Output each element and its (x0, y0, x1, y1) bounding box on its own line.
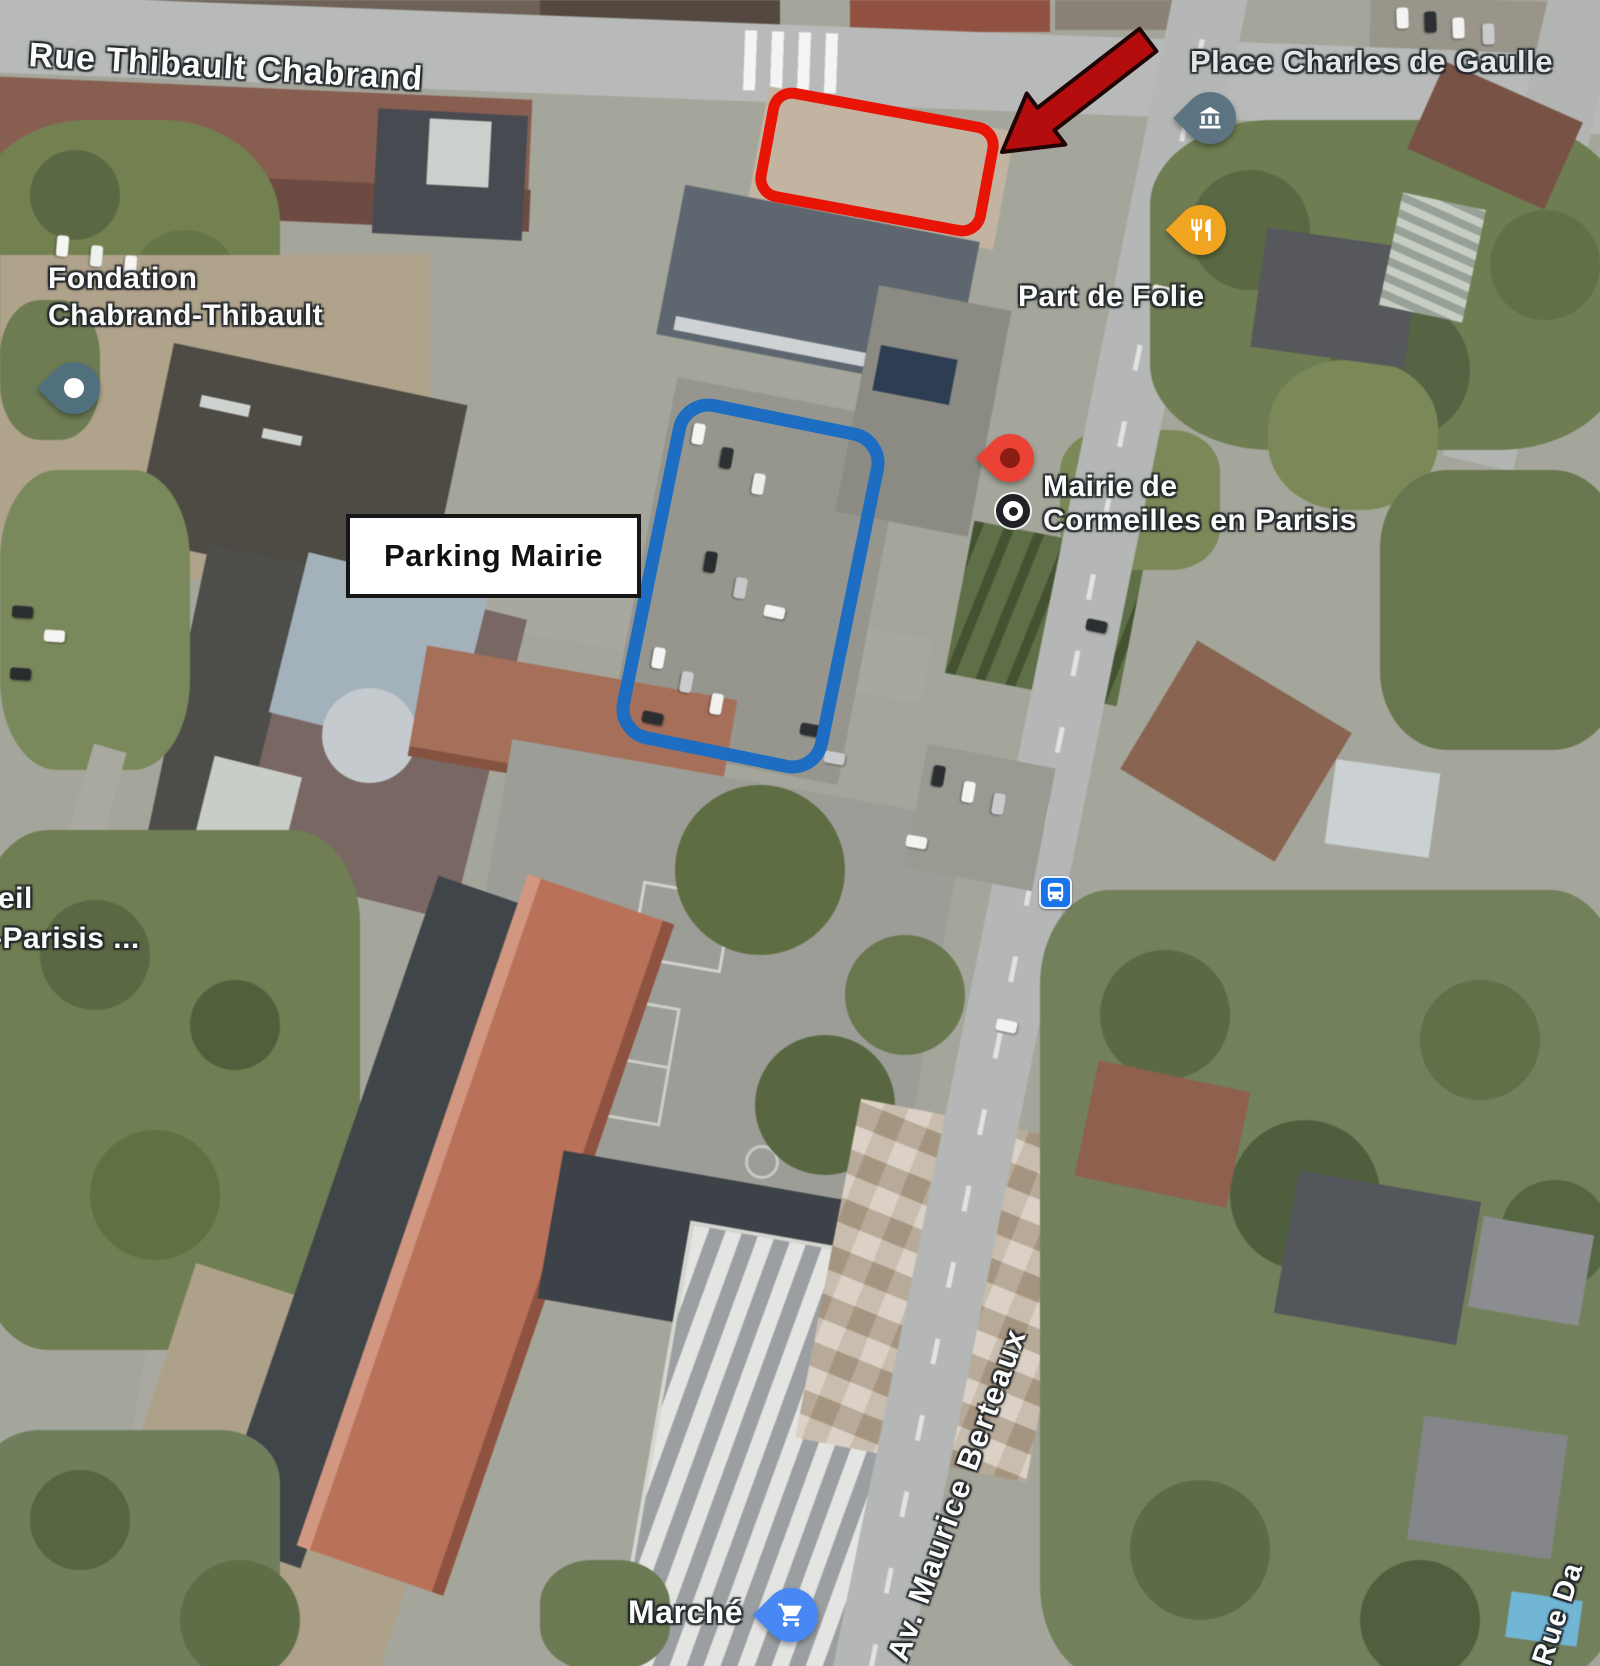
place-charles-de-gaulle-label[interactable]: Place Charles de Gaulle (1190, 44, 1553, 80)
parking-mairie-callout: Parking Mairie (346, 514, 641, 598)
direction-arrow (0, 0, 1600, 1666)
pin-body (1173, 81, 1247, 155)
mairie-pin[interactable] (986, 434, 1034, 482)
partial-label-left-line2: -Parisis ... (0, 922, 140, 956)
fondation-label-line2: Chabrand-Thibault (48, 297, 323, 334)
place-charles-de-gaulle-pin[interactable] (1184, 92, 1236, 144)
bus-icon (1044, 881, 1067, 904)
pin-inner-dot (1000, 448, 1020, 468)
pin-body (37, 351, 111, 425)
mairie-label-line2: Cormeilles en Parisis (1043, 504, 1357, 538)
parking-mairie-callout-text: Parking Mairie (384, 538, 603, 574)
mairie-location-ring (996, 494, 1030, 528)
fondation-label-line1: Fondation (48, 260, 323, 297)
pin-body (976, 424, 1044, 492)
satellite-map-view: Rue Thibault Chabrand Place Charles de G… (0, 0, 1600, 1666)
restaurant-icon (1188, 217, 1214, 243)
marche-pin[interactable] (764, 1588, 818, 1642)
marche-label[interactable]: Marché (628, 1594, 743, 1631)
pin-body (753, 1577, 829, 1653)
cart-icon (777, 1601, 805, 1629)
fondation-pin[interactable] (48, 362, 100, 414)
bus-stop-icon[interactable] (1039, 876, 1072, 909)
arrow-shape (1002, 29, 1157, 152)
mairie-label[interactable]: Mairie de Cormeilles en Parisis (1043, 470, 1357, 538)
part-de-folie-label[interactable]: Part de Folie (1018, 280, 1205, 314)
pin-body (1166, 195, 1237, 266)
mairie-label-line1: Mairie de (1043, 470, 1357, 504)
bank-icon (1196, 104, 1224, 132)
mairie-location-dot (1009, 507, 1018, 516)
restaurant-pin[interactable] (1176, 205, 1226, 255)
fondation-label[interactable]: Fondation Chabrand-Thibault (48, 260, 323, 334)
dot-icon (64, 378, 84, 398)
partial-label-left-line1: eil (0, 882, 33, 916)
